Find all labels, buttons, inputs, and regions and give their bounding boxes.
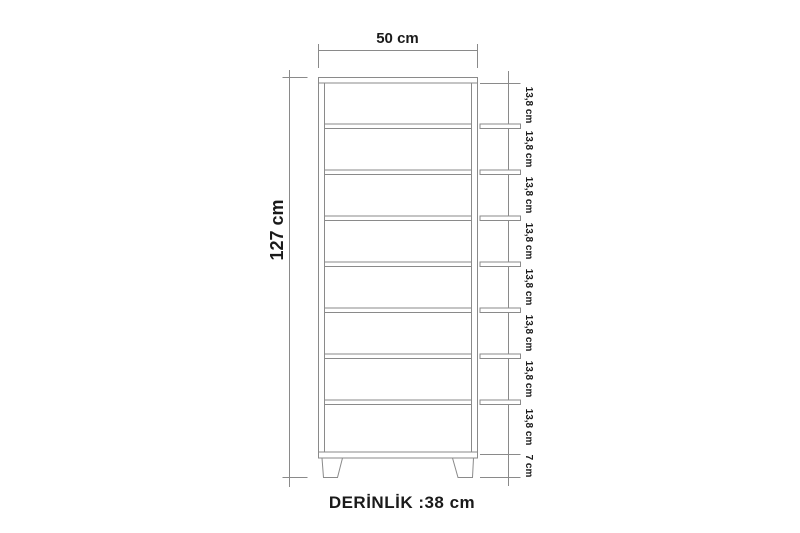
cabinet-leg-left [322, 458, 343, 478]
shelf-board [325, 170, 472, 175]
cabinet-side-left [319, 78, 325, 453]
depth-label: DERİNLİK :38 cm [252, 492, 552, 514]
shelf-tick [480, 354, 521, 359]
cabinet-leg-right [453, 458, 474, 478]
cabinet-bottom-board [319, 452, 478, 458]
shelf-board [325, 354, 472, 359]
shelf-tick [480, 124, 521, 129]
shelf-tick [480, 400, 521, 405]
shelf-board [325, 124, 472, 129]
shelf-tick [480, 170, 521, 175]
height-dimension-label: 127 cm [267, 190, 287, 270]
leg-height-label: 7 cm [521, 436, 535, 496]
shelf-board [325, 308, 472, 313]
cabinet-dimension-drawing [0, 0, 800, 533]
width-dimension-label: 50 cm [318, 31, 477, 47]
shelf-board [325, 262, 472, 267]
technical-drawing-page: 50 cm 127 cm 13,8 cm 13,8 cm 13,8 cm 13,… [0, 0, 800, 533]
cabinet-side-right [472, 78, 478, 453]
cabinet-top-board [319, 78, 478, 84]
shelf-tick [480, 216, 521, 221]
shelf-board [325, 216, 472, 221]
shelf-tick [480, 262, 521, 267]
shelf-board [325, 400, 472, 405]
shelf-tick [480, 308, 521, 313]
